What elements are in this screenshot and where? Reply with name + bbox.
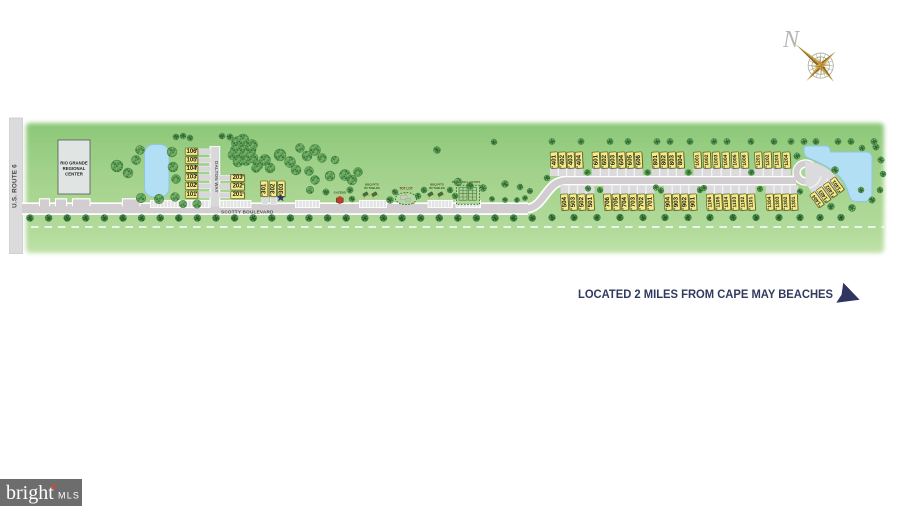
svg-text:GAZEBO: GAZEBO: [334, 190, 347, 194]
svg-text:1303: 1303: [775, 196, 782, 208]
svg-text:104: 104: [186, 166, 197, 172]
svg-text:902: 902: [681, 196, 689, 207]
svg-text:603: 603: [609, 154, 617, 165]
svg-text:103: 103: [186, 175, 197, 181]
svg-text:801: 801: [652, 154, 660, 165]
svg-text:1204: 1204: [784, 154, 791, 166]
svg-text:606: 606: [635, 154, 643, 165]
svg-text:LOCATED 2 MILES FROM CAPE MAY: LOCATED 2 MILES FROM CAPE MAY BEACHES: [578, 287, 833, 301]
svg-text:403: 403: [567, 154, 575, 165]
svg-text:1002: 1002: [704, 154, 711, 166]
svg-text:903: 903: [673, 196, 681, 207]
svg-text:CENTER: CENTER: [65, 172, 84, 177]
svg-text:604: 604: [618, 154, 626, 165]
svg-text:MLS: MLS: [58, 491, 80, 501]
svg-text:802: 802: [660, 154, 668, 165]
svg-text:1001: 1001: [694, 154, 701, 166]
svg-text:W/ TABLES: W/ TABLES: [429, 186, 445, 190]
svg-text:101: 101: [186, 192, 197, 198]
svg-text:1105: 1105: [715, 196, 722, 207]
svg-text:TOT LOT: TOT LOT: [399, 187, 413, 191]
svg-text:106: 106: [186, 149, 197, 155]
svg-text:201: 201: [233, 192, 244, 198]
svg-text:901: 901: [689, 196, 697, 207]
svg-text:402: 402: [559, 154, 567, 165]
svg-text:1006: 1006: [742, 154, 749, 166]
svg-text:502: 502: [578, 196, 586, 207]
svg-text:401: 401: [550, 154, 558, 165]
svg-text:1304: 1304: [767, 196, 774, 208]
svg-text:SCOTTY BOULEVARD: SCOTTY BOULEVARD: [221, 209, 274, 214]
svg-text:203: 203: [233, 175, 244, 181]
svg-text:504: 504: [561, 196, 569, 207]
svg-text:601: 601: [592, 154, 600, 165]
svg-text:904: 904: [664, 196, 672, 207]
svg-text:1301: 1301: [791, 196, 798, 208]
svg-text:U.S. ROUTE 6: U.S. ROUTE 6: [12, 164, 19, 208]
svg-text:706: 706: [604, 196, 612, 207]
svg-text:702: 702: [638, 196, 646, 207]
svg-text:1005: 1005: [732, 154, 739, 166]
svg-text:1103: 1103: [732, 196, 739, 207]
svg-text:1004: 1004: [723, 154, 730, 166]
svg-text:301: 301: [261, 183, 268, 194]
svg-text:N: N: [782, 27, 801, 53]
svg-text:701: 701: [647, 196, 655, 207]
svg-text:803: 803: [668, 154, 676, 165]
svg-text:105: 105: [186, 157, 197, 163]
svg-text:303: 303: [278, 183, 285, 194]
svg-text:1101: 1101: [748, 196, 755, 207]
svg-text:REGIONAL: REGIONAL: [63, 166, 86, 171]
svg-text:703: 703: [630, 196, 638, 207]
svg-text:W/ TABLES: W/ TABLES: [364, 186, 380, 190]
svg-text:PICKLE BALL COURTS: PICKLE BALL COURTS: [452, 181, 481, 184]
svg-text:804: 804: [677, 154, 685, 165]
svg-text:202: 202: [233, 184, 244, 190]
svg-text:bright: bright: [6, 482, 54, 504]
svg-text:704: 704: [621, 196, 629, 207]
svg-text:102: 102: [186, 183, 197, 189]
svg-text:RIO GRANDE: RIO GRANDE: [60, 161, 88, 166]
svg-text:1104: 1104: [724, 196, 731, 207]
svg-text:1102: 1102: [740, 196, 747, 207]
svg-text:1003: 1003: [713, 154, 720, 166]
svg-text:602: 602: [601, 154, 609, 165]
svg-text:1106: 1106: [707, 196, 714, 207]
svg-text:1203: 1203: [774, 154, 781, 166]
svg-text:503: 503: [570, 196, 578, 207]
svg-text:1201: 1201: [755, 154, 762, 166]
svg-text:1302: 1302: [783, 196, 790, 208]
svg-text:501: 501: [587, 196, 595, 207]
svg-text:1202: 1202: [765, 154, 772, 166]
svg-text:705: 705: [612, 196, 620, 207]
svg-text:404: 404: [575, 154, 583, 165]
svg-text:605: 605: [626, 154, 634, 165]
svg-text:DALTON WAY: DALTON WAY: [214, 161, 219, 193]
svg-text:302: 302: [269, 183, 276, 194]
